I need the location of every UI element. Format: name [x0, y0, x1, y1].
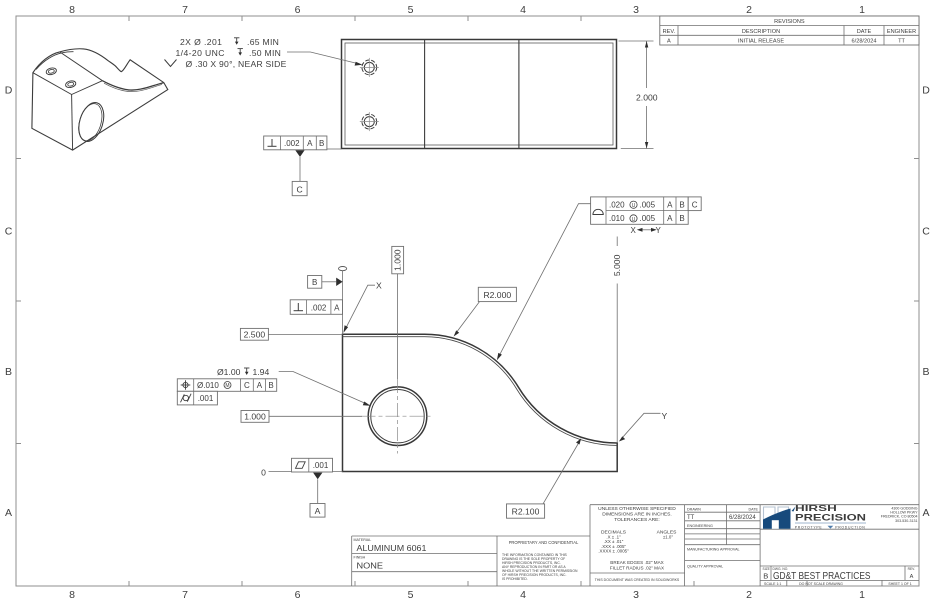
- svg-text:B: B: [922, 366, 929, 378]
- svg-text:SHEET 1 OF 1: SHEET 1 OF 1: [888, 582, 911, 586]
- svg-text:MATERIAL: MATERIAL: [354, 538, 372, 542]
- svg-text:SIZE: SIZE: [763, 567, 771, 571]
- svg-text:.001: .001: [313, 461, 329, 470]
- svg-text:X: X: [631, 226, 637, 235]
- svg-text:6/28/2024: 6/28/2024: [729, 515, 756, 521]
- svg-text:C: C: [922, 226, 930, 238]
- svg-text:Ø.010: Ø.010: [197, 381, 219, 390]
- svg-text:A: A: [922, 507, 929, 519]
- svg-text:.002: .002: [311, 303, 327, 312]
- svg-text:DRAWN: DRAWN: [687, 507, 701, 511]
- svg-text:A: A: [315, 506, 321, 516]
- svg-text:ENGINEERING: ENGINEERING: [687, 524, 713, 528]
- svg-text:1.94: 1.94: [253, 367, 270, 377]
- svg-text:B: B: [679, 214, 684, 223]
- svg-text:1.000: 1.000: [244, 412, 266, 422]
- svg-text:303-530-3131: 303-530-3131: [895, 519, 917, 523]
- svg-text:.65 MIN: .65 MIN: [247, 37, 279, 47]
- svg-text:TT: TT: [898, 39, 905, 45]
- svg-text:6: 6: [295, 4, 301, 16]
- svg-text:DESCRIPTION: DESCRIPTION: [742, 29, 780, 35]
- svg-text:.010: .010: [609, 214, 625, 223]
- svg-text:2.000: 2.000: [636, 92, 658, 102]
- svg-text:UNLESS OTHERWISE SPECIFIED: UNLESS OTHERWISE SPECIFIED: [598, 506, 676, 512]
- svg-text:DATE: DATE: [748, 507, 758, 511]
- svg-text:.005: .005: [640, 214, 656, 223]
- svg-text:Y: Y: [656, 226, 662, 235]
- svg-text:Y: Y: [662, 411, 668, 421]
- svg-text:5: 5: [408, 4, 414, 16]
- svg-text:5.000: 5.000: [612, 254, 622, 276]
- svg-text:8: 8: [69, 589, 75, 601]
- svg-text:R2.000: R2.000: [483, 290, 511, 300]
- svg-text:DIMENSIONS ARE IN INCHES.: DIMENSIONS ARE IN INCHES.: [602, 512, 672, 518]
- svg-text:5: 5: [408, 589, 414, 601]
- svg-text:ENGINEER: ENGINEER: [887, 29, 916, 35]
- svg-text:D: D: [922, 85, 930, 97]
- svg-text:±1.0°: ±1.0°: [663, 535, 674, 540]
- svg-text:TT: TT: [687, 515, 695, 521]
- svg-text:2: 2: [746, 4, 752, 16]
- svg-text:7: 7: [182, 4, 188, 16]
- svg-text:A: A: [334, 303, 340, 312]
- svg-text:DATE: DATE: [857, 29, 872, 35]
- svg-text:IS PROHIBITED.: IS PROHIBITED.: [502, 577, 528, 581]
- svg-text:ALUMINUM 6061: ALUMINUM 6061: [357, 543, 427, 553]
- svg-text:B: B: [679, 201, 684, 210]
- svg-text:6/28/2024: 6/28/2024: [852, 39, 877, 45]
- svg-text:REV.: REV.: [663, 29, 676, 35]
- svg-text:0: 0: [261, 468, 266, 478]
- svg-text:D: D: [5, 85, 13, 97]
- svg-text:1: 1: [859, 4, 865, 16]
- svg-text:3: 3: [633, 4, 639, 16]
- svg-text:Ø1.00: Ø1.00: [217, 367, 241, 377]
- svg-text:2.500: 2.500: [244, 330, 266, 340]
- svg-text:A: A: [307, 139, 313, 148]
- svg-text:A: A: [667, 214, 673, 223]
- svg-text:A: A: [667, 201, 673, 210]
- svg-text:THIS DOCUMENT WAS CREATED IN S: THIS DOCUMENT WAS CREATED IN SOLIDWORKS: [595, 578, 680, 582]
- svg-text:C: C: [5, 226, 13, 238]
- svg-text:.001: .001: [198, 394, 214, 403]
- svg-text:GD&T BEST PRACTICES: GD&T BEST PRACTICES: [773, 571, 871, 582]
- svg-text:.020: .020: [609, 201, 625, 210]
- svg-text:6: 6: [295, 589, 301, 601]
- svg-text:SCALE 1:1: SCALE 1:1: [764, 582, 781, 586]
- svg-text:7: 7: [182, 589, 188, 601]
- svg-text:C: C: [244, 381, 250, 390]
- svg-text:FILLET RADIUS .02" MAX: FILLET RADIUS .02" MAX: [610, 565, 664, 570]
- svg-text:B: B: [312, 278, 317, 287]
- svg-text:A: A: [910, 574, 914, 580]
- svg-text:MANUFACTURING APPROVAL: MANUFACTURING APPROVAL: [687, 548, 740, 552]
- svg-text:1/4-20 UNC: 1/4-20 UNC: [176, 48, 225, 58]
- svg-text:1.000: 1.000: [392, 249, 402, 271]
- svg-text:A: A: [5, 507, 12, 519]
- svg-text:FINISH: FINISH: [354, 556, 366, 560]
- svg-text:3: 3: [633, 589, 639, 601]
- svg-text:M: M: [225, 383, 229, 389]
- svg-text:Ø .30 X 90°, NEAR SIDE: Ø .30 X 90°, NEAR SIDE: [186, 59, 287, 69]
- svg-text:REV.: REV.: [908, 567, 916, 571]
- svg-text:B: B: [5, 366, 12, 378]
- svg-text:2: 2: [746, 589, 752, 601]
- svg-text:PROTOTYPE: PROTOTYPE: [795, 526, 823, 530]
- svg-text:B: B: [763, 572, 768, 581]
- svg-text:4: 4: [520, 589, 526, 601]
- svg-text:U: U: [632, 217, 636, 223]
- svg-text:C: C: [296, 184, 302, 194]
- svg-text:8: 8: [69, 4, 75, 16]
- svg-text:BREAK EDGES .02" MAX: BREAK EDGES .02" MAX: [610, 560, 663, 565]
- svg-text:PROPRIETARY AND CONFIDENTIAL: PROPRIETARY AND CONFIDENTIAL: [509, 540, 579, 545]
- svg-text:R2.100: R2.100: [512, 507, 540, 517]
- svg-text:PRODUCTION: PRODUCTION: [835, 526, 865, 530]
- svg-text:REVISIONS: REVISIONS: [774, 19, 805, 25]
- svg-text:.002: .002: [284, 139, 300, 148]
- svg-text:B: B: [268, 381, 273, 390]
- svg-text:QUALITY APPROVAL: QUALITY APPROVAL: [687, 565, 723, 569]
- svg-text:TOLERANCES ARE:: TOLERANCES ARE:: [614, 517, 660, 523]
- svg-text:A: A: [667, 39, 671, 45]
- svg-text:.50 MIN: .50 MIN: [249, 48, 281, 58]
- svg-text:.XXXX ± .0005": .XXXX ± .0005": [598, 549, 629, 554]
- svg-text:INITIAL RELEASE: INITIAL RELEASE: [738, 39, 784, 45]
- svg-text:1: 1: [859, 589, 865, 601]
- svg-text:PRECISION: PRECISION: [795, 511, 866, 522]
- svg-text:DO NOT SCALE DRAWING: DO NOT SCALE DRAWING: [799, 582, 843, 586]
- svg-text:.005: .005: [640, 201, 656, 210]
- svg-text:NONE: NONE: [357, 560, 384, 570]
- svg-text:2X Ø .201: 2X Ø .201: [180, 37, 222, 47]
- svg-text:4: 4: [520, 4, 526, 16]
- svg-text:U: U: [632, 203, 636, 209]
- svg-text:X: X: [376, 281, 382, 291]
- svg-text:C: C: [692, 201, 698, 210]
- svg-text:A: A: [257, 381, 263, 390]
- svg-text:B: B: [319, 139, 324, 148]
